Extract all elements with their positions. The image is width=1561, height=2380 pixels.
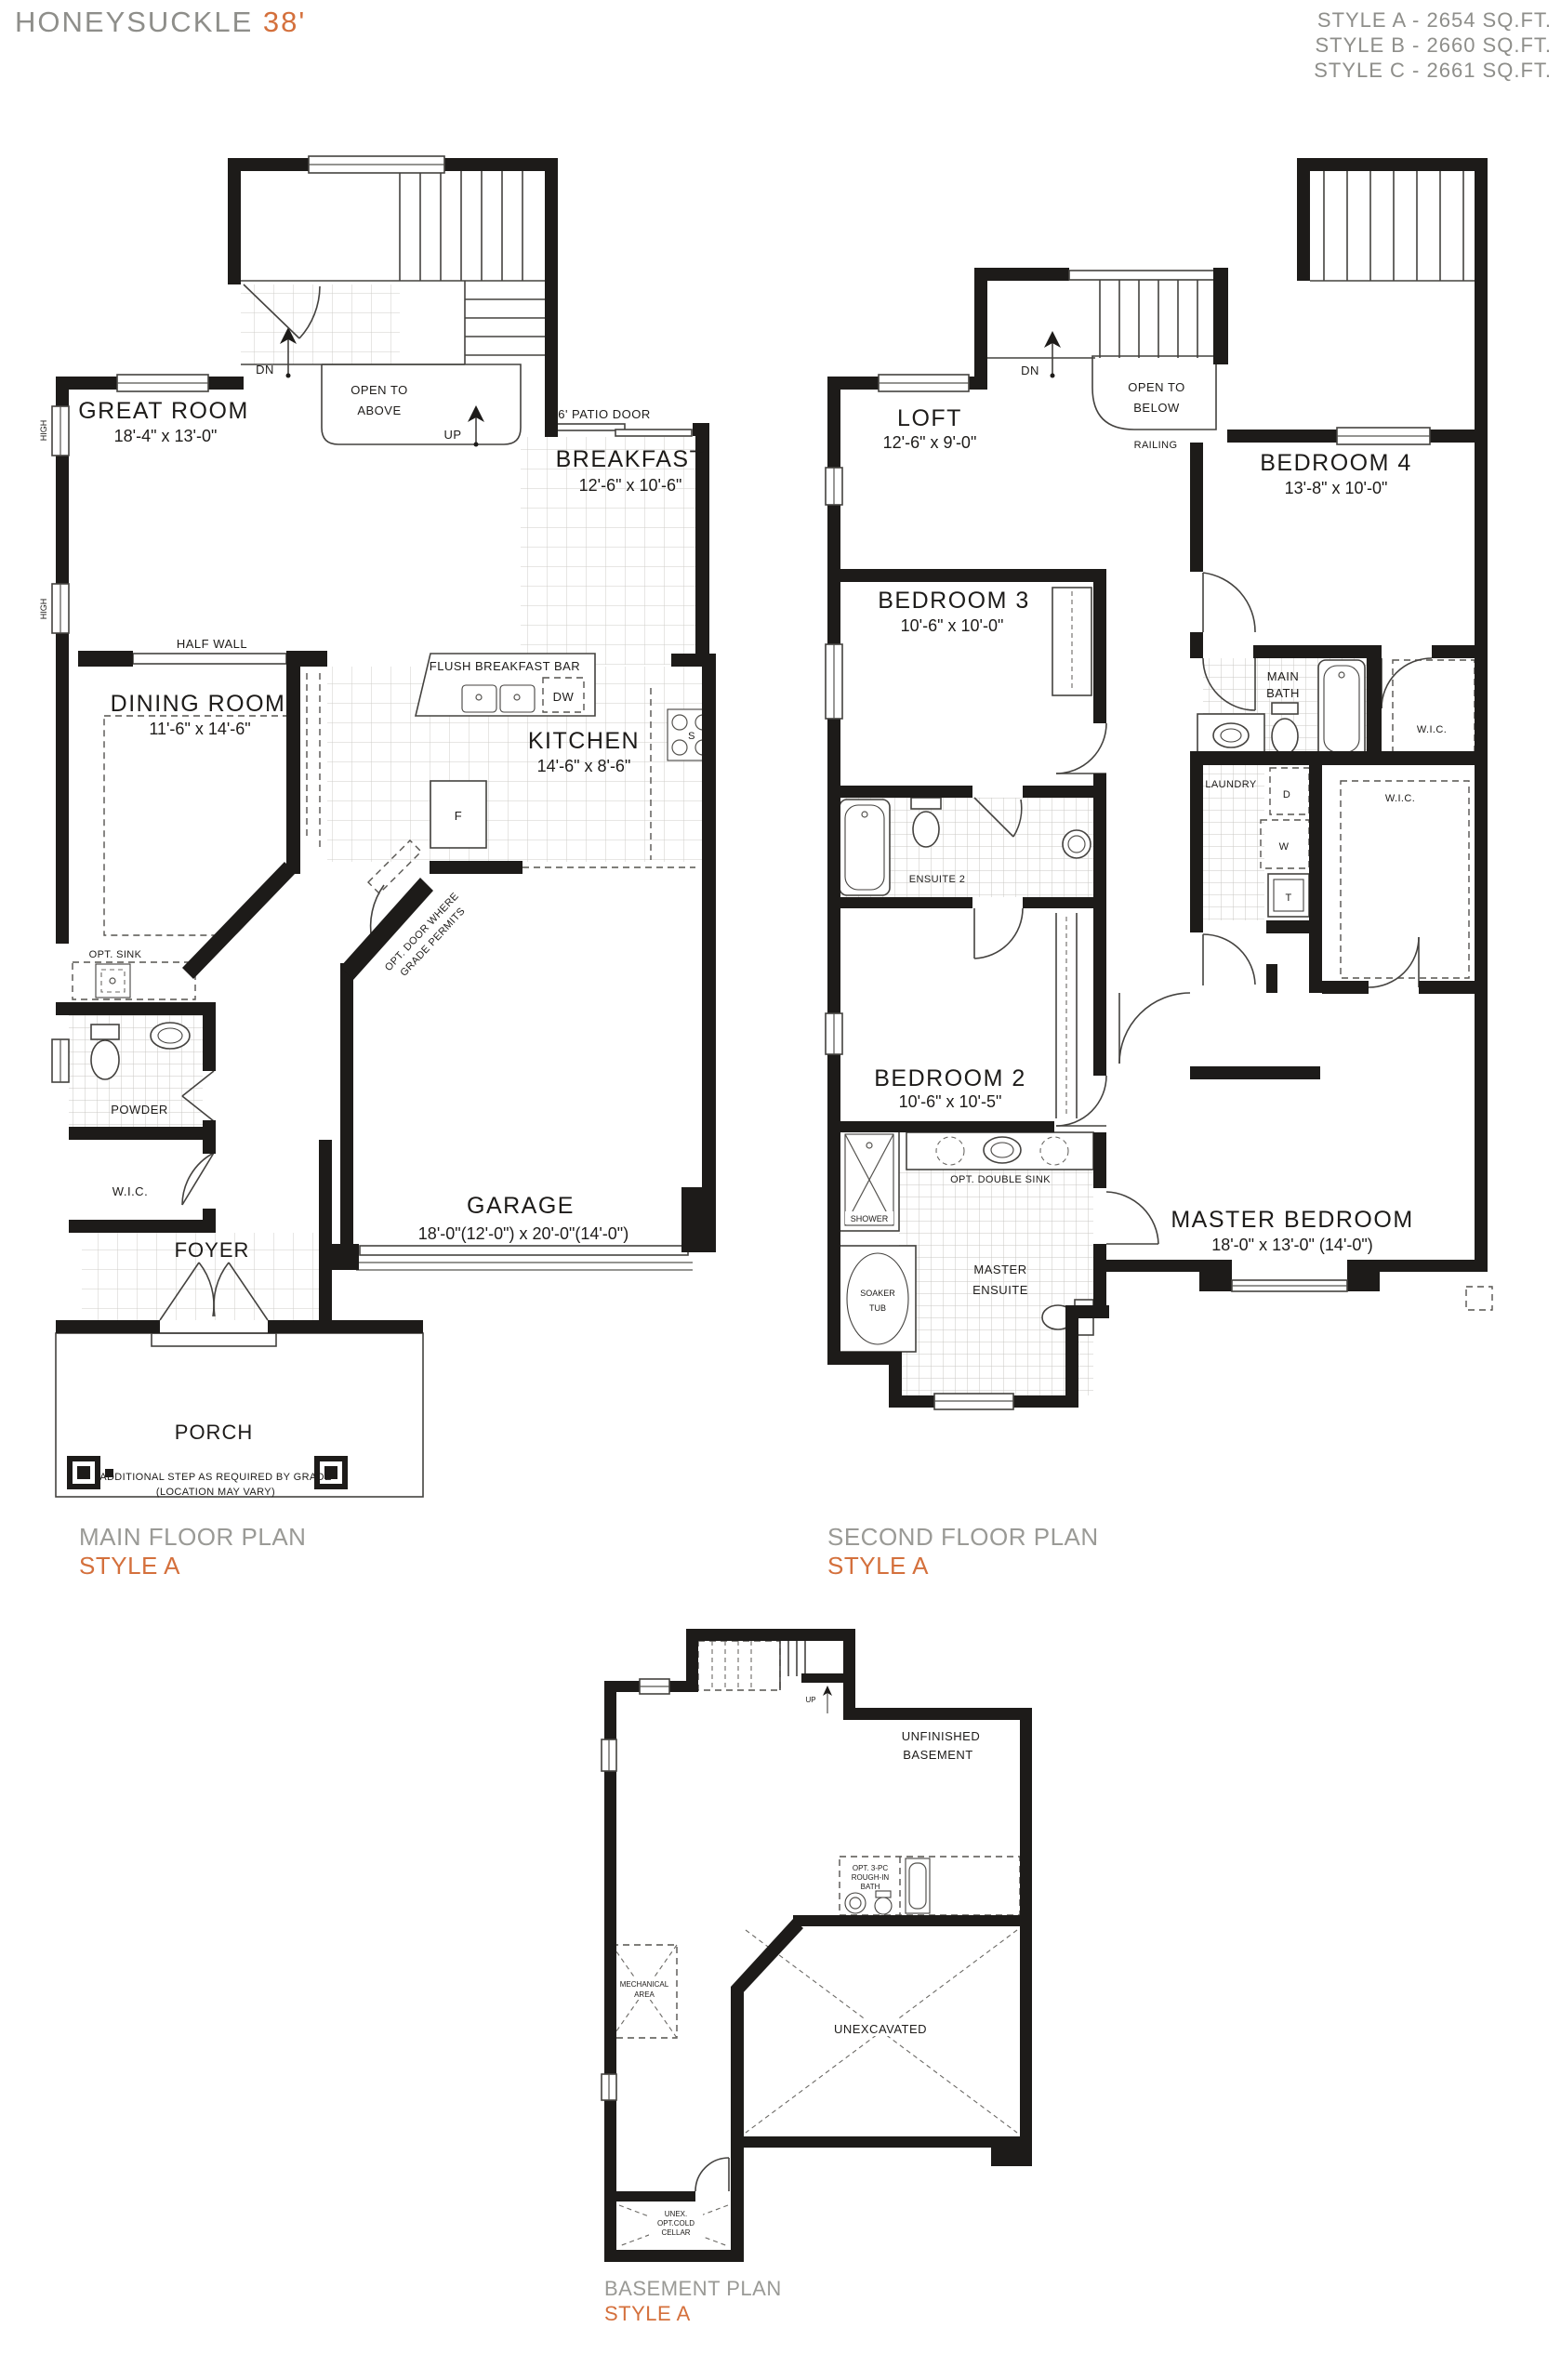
main-floor-caption-style: STYLE A <box>79 1552 306 1580</box>
washer-label: W <box>1279 841 1290 853</box>
basement-stairs: UP <box>698 1641 844 1713</box>
open-to-below-label-1: OPEN TO <box>1128 380 1185 394</box>
high-label-1: HIGH <box>39 420 48 442</box>
soaker-tub-label-1: SOAKER <box>860 1289 895 1298</box>
master-bedroom-label: MASTER BEDROOM <box>1171 1207 1413 1233</box>
opt-bath-label-1: OPT. 3-PC <box>853 1864 888 1872</box>
dryer-label: D <box>1283 789 1290 800</box>
step-note-2: (LOCATION MAY VARY) <box>156 1487 275 1498</box>
opt-bath-label-2: ROUGH-IN <box>852 1873 890 1882</box>
toilet-icon <box>91 1025 119 1039</box>
foyer-label: FOYER <box>175 1238 250 1262</box>
plan-title: HONEYSUCKLE 38' <box>15 6 306 39</box>
second-floor-plan-drawing: OPEN TO BELOW RAILING DN ENSUITE 2 MA <box>809 149 1515 1515</box>
basement-caption-style: STYLE A <box>604 2301 782 2326</box>
half-wall: HALF WALL <box>133 637 286 664</box>
garage-door <box>356 1246 693 1270</box>
opt-window-seat-icon <box>1466 1287 1492 1310</box>
unexcavated-label: UNEXCAVATED <box>834 2022 927 2036</box>
step-note-1: ADDITIONAL STEP AS REQUIRED BY GRADE <box>99 1472 332 1483</box>
fridge-label: F <box>455 809 462 823</box>
cold-cellar: UNEX. OPT.COLD CELLAR <box>619 2158 729 2246</box>
wic-bedroom4: W.I.C. <box>1382 658 1475 759</box>
wic-door <box>182 1153 214 1205</box>
bedroom3-closet <box>1052 588 1091 695</box>
basement-plan-drawing: UP OPT. 3-PC ROUGH-IN BATH MECHANICAL AR… <box>586 1618 1051 2268</box>
opt-sink-nook: OPT. SINK <box>73 949 195 999</box>
great-room-dims: 18'-4" x 13'-0" <box>114 427 218 445</box>
bedroom2-closet <box>1056 913 1077 1118</box>
patio-door-label: 6' PATIO DOOR <box>558 407 651 421</box>
dn-label-2f: DN <box>1021 364 1039 377</box>
sink-icon <box>1063 830 1091 858</box>
opt-rough-in-bath: OPT. 3-PC ROUGH-IN BATH <box>840 1857 1020 1915</box>
cold-cellar-label-2: OPT.COLD <box>657 2219 695 2228</box>
garage-dims: 18'-0"(12'-0") x 20'-0"(14'-0") <box>418 1224 628 1243</box>
dining-room-label: DINING ROOM <box>111 691 286 717</box>
style-b-sqft: STYLE B - 2660 SQ.FT. <box>1314 33 1552 58</box>
dn-label: DN <box>256 363 274 377</box>
cold-cellar-label-1: UNEX. <box>665 2210 687 2218</box>
loft-dims: 12'-6" x 9'-0" <box>883 433 977 452</box>
open-to-below-railing: OPEN TO BELOW RAILING <box>1092 356 1216 451</box>
style-a-sqft: STYLE A - 2654 SQ.FT. <box>1314 7 1552 33</box>
toilet-icon <box>911 798 941 809</box>
shower-label: SHOWER <box>851 1214 889 1223</box>
open-to-above-label-2: ABOVE <box>357 403 401 417</box>
patio-door: 6' PATIO DOOR <box>549 407 692 436</box>
style-square-footage-list: STYLE A - 2654 SQ.FT. STYLE B - 2660 SQ.… <box>1314 7 1552 83</box>
main-floor-caption: MAIN FLOOR PLAN STYLE A <box>79 1523 306 1580</box>
kitchen-dims: 14'-6" x 8'-6" <box>537 757 631 775</box>
unexcavated-area: UNEXCAVATED <box>746 1930 1017 2133</box>
porch-label: PORCH <box>175 1421 253 1444</box>
cold-cellar-label-3: CELLAR <box>661 2228 690 2237</box>
basement-caption: BASEMENT PLAN STYLE A <box>604 2276 782 2326</box>
up-label: UP <box>443 428 461 442</box>
railing-label: RAILING <box>1134 440 1178 451</box>
kitchen-sink-icon <box>462 685 496 712</box>
wic-label: W.I.C. <box>112 1184 148 1198</box>
laundry-tub-label: T <box>1285 892 1291 904</box>
half-wall-label: HALF WALL <box>177 637 247 651</box>
breakfast-label: BREAKFAST <box>556 446 706 472</box>
mechanical-label-1: MECHANICAL <box>620 1980 669 1989</box>
style-c-sqft: STYLE C - 2661 SQ.FT. <box>1314 58 1552 83</box>
dining-room-dims: 11'-6" x 14'-6" <box>149 720 250 738</box>
open-to-above-label-1: OPEN TO <box>351 383 408 397</box>
sink-icon <box>845 1893 866 1913</box>
master-bedroom-dims: 18'-0" x 13'-0" (14'-0") <box>1211 1236 1373 1254</box>
second-floor-stairs <box>987 171 1475 358</box>
unfinished-basement-label-2: BASEMENT <box>903 1748 973 1762</box>
opt-sink-label: OPT. SINK <box>89 949 142 960</box>
main-floor-caption-title: MAIN FLOOR PLAN <box>79 1523 306 1552</box>
open-to-below-label-2: BELOW <box>1133 401 1180 415</box>
wic-master-label: W.I.C. <box>1385 793 1415 804</box>
second-floor-caption-style: STYLE A <box>827 1552 1099 1580</box>
plan-title-size: 38' <box>263 6 306 38</box>
master-ensuite-label-2: ENSUITE <box>972 1283 1028 1297</box>
plan-title-name: HONEYSUCKLE <box>15 6 253 38</box>
bedroom2-dims: 10'-6" x 10'-5" <box>899 1092 1002 1111</box>
bedroom4-dims: 13'-8" x 10'-0" <box>1285 479 1388 497</box>
bedroom3-dims: 10'-6" x 10'-0" <box>901 616 1004 635</box>
opt-bath-label-3: BATH <box>861 1883 880 1891</box>
bedroom3-label: BEDROOM 3 <box>878 588 1030 614</box>
dishwasher-label: DW <box>553 690 575 704</box>
main-floor-plan-drawing: OPEN TO ABOVE DN UP DW FLUSH BREAKFAST B… <box>37 149 762 1515</box>
high-label-2: HIGH <box>39 599 48 620</box>
opt-double-sink-label: OPT. DOUBLE SINK <box>950 1174 1051 1185</box>
wic-bedroom4-label: W.I.C. <box>1417 724 1447 735</box>
laundry-label: LAUNDRY <box>1205 779 1256 790</box>
loft-label: LOFT <box>897 405 962 431</box>
second-floor-caption-title: SECOND FLOOR PLAN <box>827 1523 1099 1552</box>
soaker-tub-label-2: TUB <box>869 1303 886 1313</box>
open-to-above-railing: OPEN TO ABOVE <box>322 364 521 444</box>
wic-master: W.I.C. <box>1341 781 1469 987</box>
kitchen-label: KITCHEN <box>528 728 640 754</box>
flush-breakfast-bar-label: FLUSH BREAKFAST BAR <box>430 659 580 673</box>
basement-caption-title: BASEMENT PLAN <box>604 2276 782 2301</box>
second-floor-dn-arrow: DN <box>1021 331 1061 378</box>
bedroom2-label: BEDROOM 2 <box>874 1065 1026 1091</box>
toilet-icon <box>876 1891 891 1897</box>
second-floor-caption: SECOND FLOOR PLAN STYLE A <box>827 1523 1099 1580</box>
unfinished-basement-label-1: UNFINISHED <box>902 1729 980 1743</box>
powder-label: POWDER <box>111 1103 168 1117</box>
ensuite2-label: ENSUITE 2 <box>909 874 965 885</box>
bedroom4-label: BEDROOM 4 <box>1260 450 1412 476</box>
great-room-label: GREAT ROOM <box>78 398 249 424</box>
breakfast-dims: 12'-6" x 10'-6" <box>579 476 682 495</box>
stove-label: S <box>688 731 695 742</box>
toilet-icon <box>1272 703 1298 714</box>
garage-label: GARAGE <box>467 1193 575 1219</box>
main-bath-label-2: BATH <box>1266 686 1300 700</box>
mechanical-area: MECHANICAL AREA <box>612 1945 677 2038</box>
mechanical-label-2: AREA <box>634 1990 655 1999</box>
main-bath-label-1: MAIN <box>1267 669 1300 683</box>
master-ensuite-label-1: MASTER <box>973 1263 1026 1276</box>
basement-up-label: UP <box>805 1696 815 1704</box>
